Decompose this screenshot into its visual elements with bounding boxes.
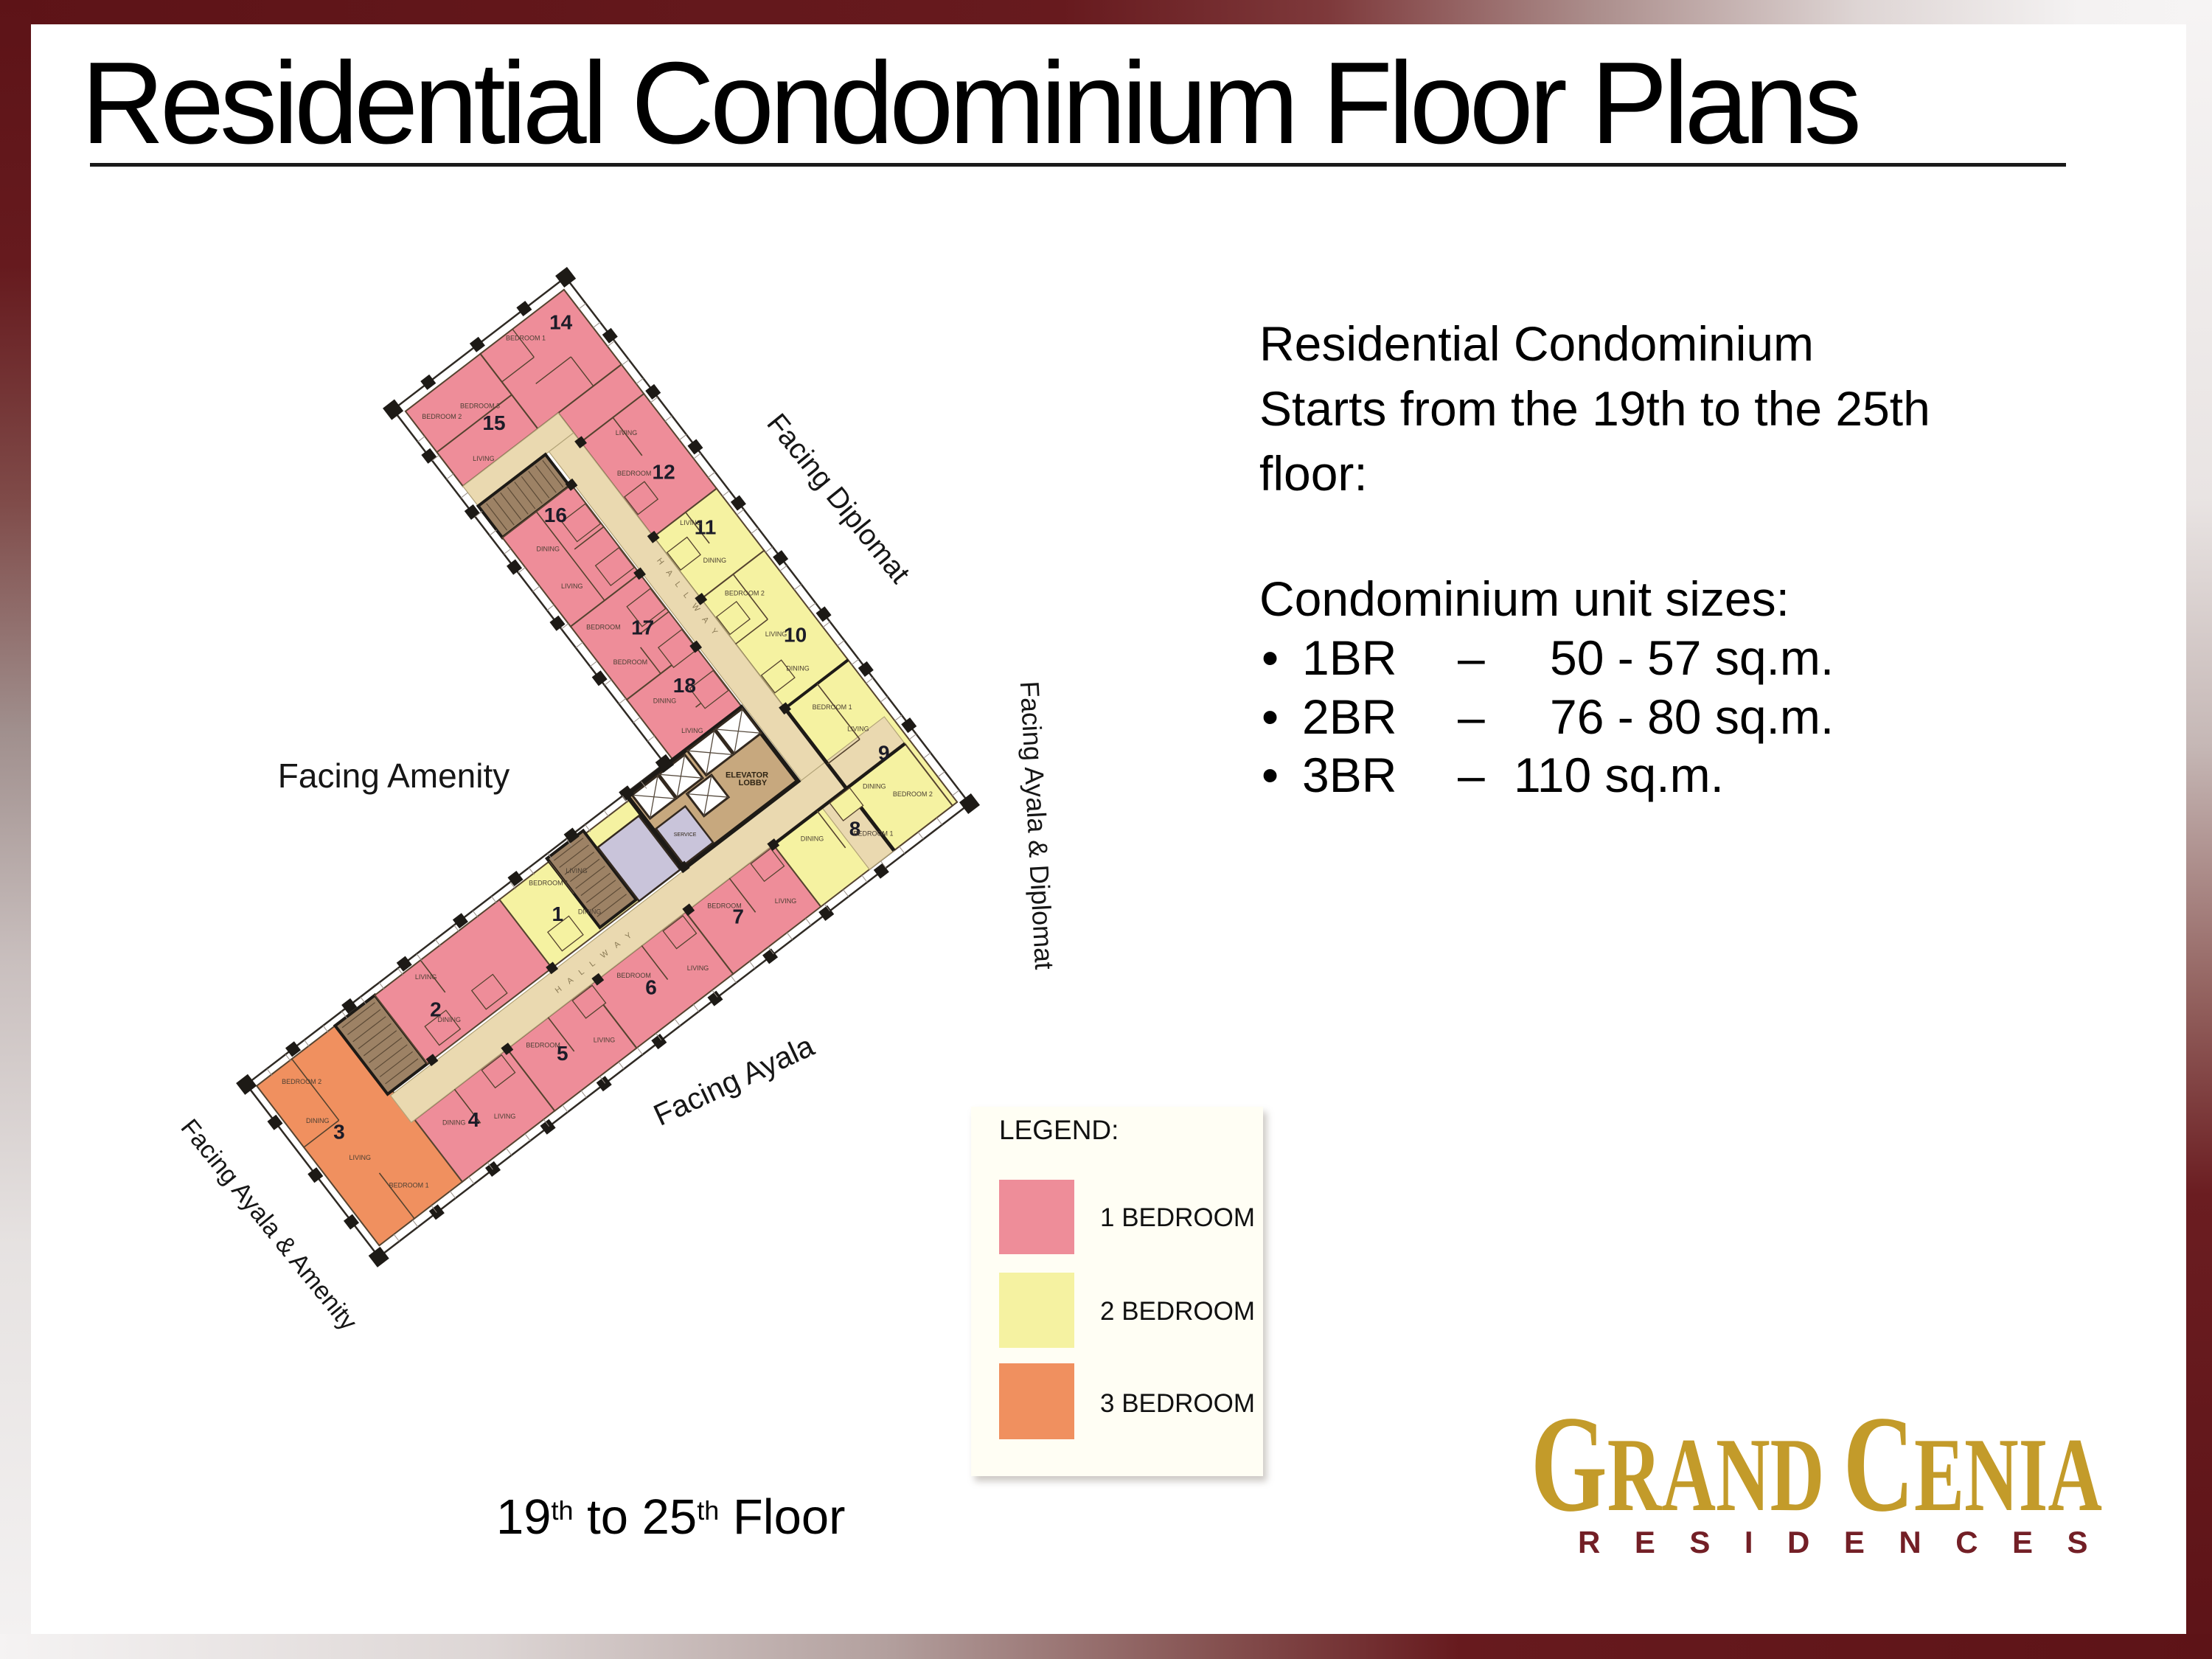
svg-text:BEDROOM 1: BEDROOM 1: [853, 829, 893, 837]
svg-text:4: 4: [468, 1108, 480, 1131]
svg-text:BEDROOM: BEDROOM: [617, 470, 652, 477]
svg-text:LIVING: LIVING: [847, 726, 869, 733]
svg-text:DINING: DINING: [442, 1119, 466, 1127]
svg-text:DINING: DINING: [437, 1016, 461, 1023]
svg-text:DINING: DINING: [801, 835, 824, 842]
svg-text:DINING: DINING: [863, 782, 886, 790]
svg-text:LIVING: LIVING: [415, 973, 437, 981]
svg-text:SERVICE: SERVICE: [674, 832, 697, 838]
svg-text:18: 18: [673, 674, 696, 697]
svg-text:BEDROOM 2: BEDROOM 2: [422, 413, 462, 420]
svg-text:9: 9: [878, 741, 890, 764]
svg-text:LIVING: LIVING: [680, 519, 702, 526]
svg-text:BEDROOM: BEDROOM: [526, 1041, 560, 1048]
svg-text:BEDROOM: BEDROOM: [616, 972, 651, 979]
svg-text:LIVING: LIVING: [473, 455, 495, 462]
svg-text:BEDROOM: BEDROOM: [707, 902, 742, 910]
svg-text:LIVING: LIVING: [561, 582, 583, 590]
svg-text:LIVING: LIVING: [349, 1154, 372, 1161]
svg-text:LIVING: LIVING: [616, 429, 638, 437]
svg-text:LIVING: LIVING: [681, 727, 703, 734]
svg-text:BEDROOM 2: BEDROOM 2: [893, 790, 933, 798]
svg-text:BEDROOM 1: BEDROOM 1: [506, 335, 546, 342]
svg-text:LIVING: LIVING: [594, 1036, 616, 1043]
svg-text:LIVING: LIVING: [494, 1113, 516, 1120]
svg-text:BEDROOM 1: BEDROOM 1: [813, 703, 852, 711]
svg-text:15: 15: [482, 411, 505, 434]
svg-text:1: 1: [552, 902, 564, 925]
svg-text:DINING: DINING: [536, 545, 560, 552]
svg-text:16: 16: [544, 504, 567, 526]
svg-text:3: 3: [333, 1120, 345, 1143]
svg-text:17: 17: [631, 616, 654, 639]
svg-text:DINING: DINING: [578, 908, 602, 916]
svg-text:14: 14: [549, 310, 573, 333]
svg-text:LIVING: LIVING: [566, 867, 588, 874]
svg-text:LIVING: LIVING: [765, 630, 787, 638]
svg-text:BEDROOM 1: BEDROOM 1: [389, 1181, 429, 1189]
svg-text:DINING: DINING: [786, 665, 810, 672]
svg-text:Facing Ayala & Diplomat: Facing Ayala & Diplomat: [1015, 681, 1060, 970]
svg-text:10: 10: [784, 624, 807, 647]
svg-text:BEDROOM 2: BEDROOM 2: [282, 1078, 321, 1085]
svg-text:DINING: DINING: [306, 1117, 330, 1124]
svg-text:DINING: DINING: [653, 698, 677, 705]
svg-text:LIVING: LIVING: [687, 964, 709, 972]
svg-text:Facing Amenity: Facing Amenity: [278, 757, 509, 795]
svg-text:BEDROOM 3: BEDROOM 3: [460, 402, 500, 409]
svg-text:BEDROOM: BEDROOM: [613, 658, 648, 666]
svg-text:BEDROOM: BEDROOM: [586, 623, 621, 630]
svg-text:LOBBY: LOBBY: [739, 779, 768, 787]
svg-text:LIVING: LIVING: [775, 897, 797, 905]
svg-text:BEDROOM 1: BEDROOM 1: [529, 879, 568, 886]
svg-text:Facing Ayala: Facing Ayala: [648, 1029, 819, 1133]
svg-text:12: 12: [653, 461, 675, 484]
svg-text:BEDROOM 2: BEDROOM 2: [725, 589, 765, 597]
svg-text:DINING: DINING: [703, 557, 727, 564]
